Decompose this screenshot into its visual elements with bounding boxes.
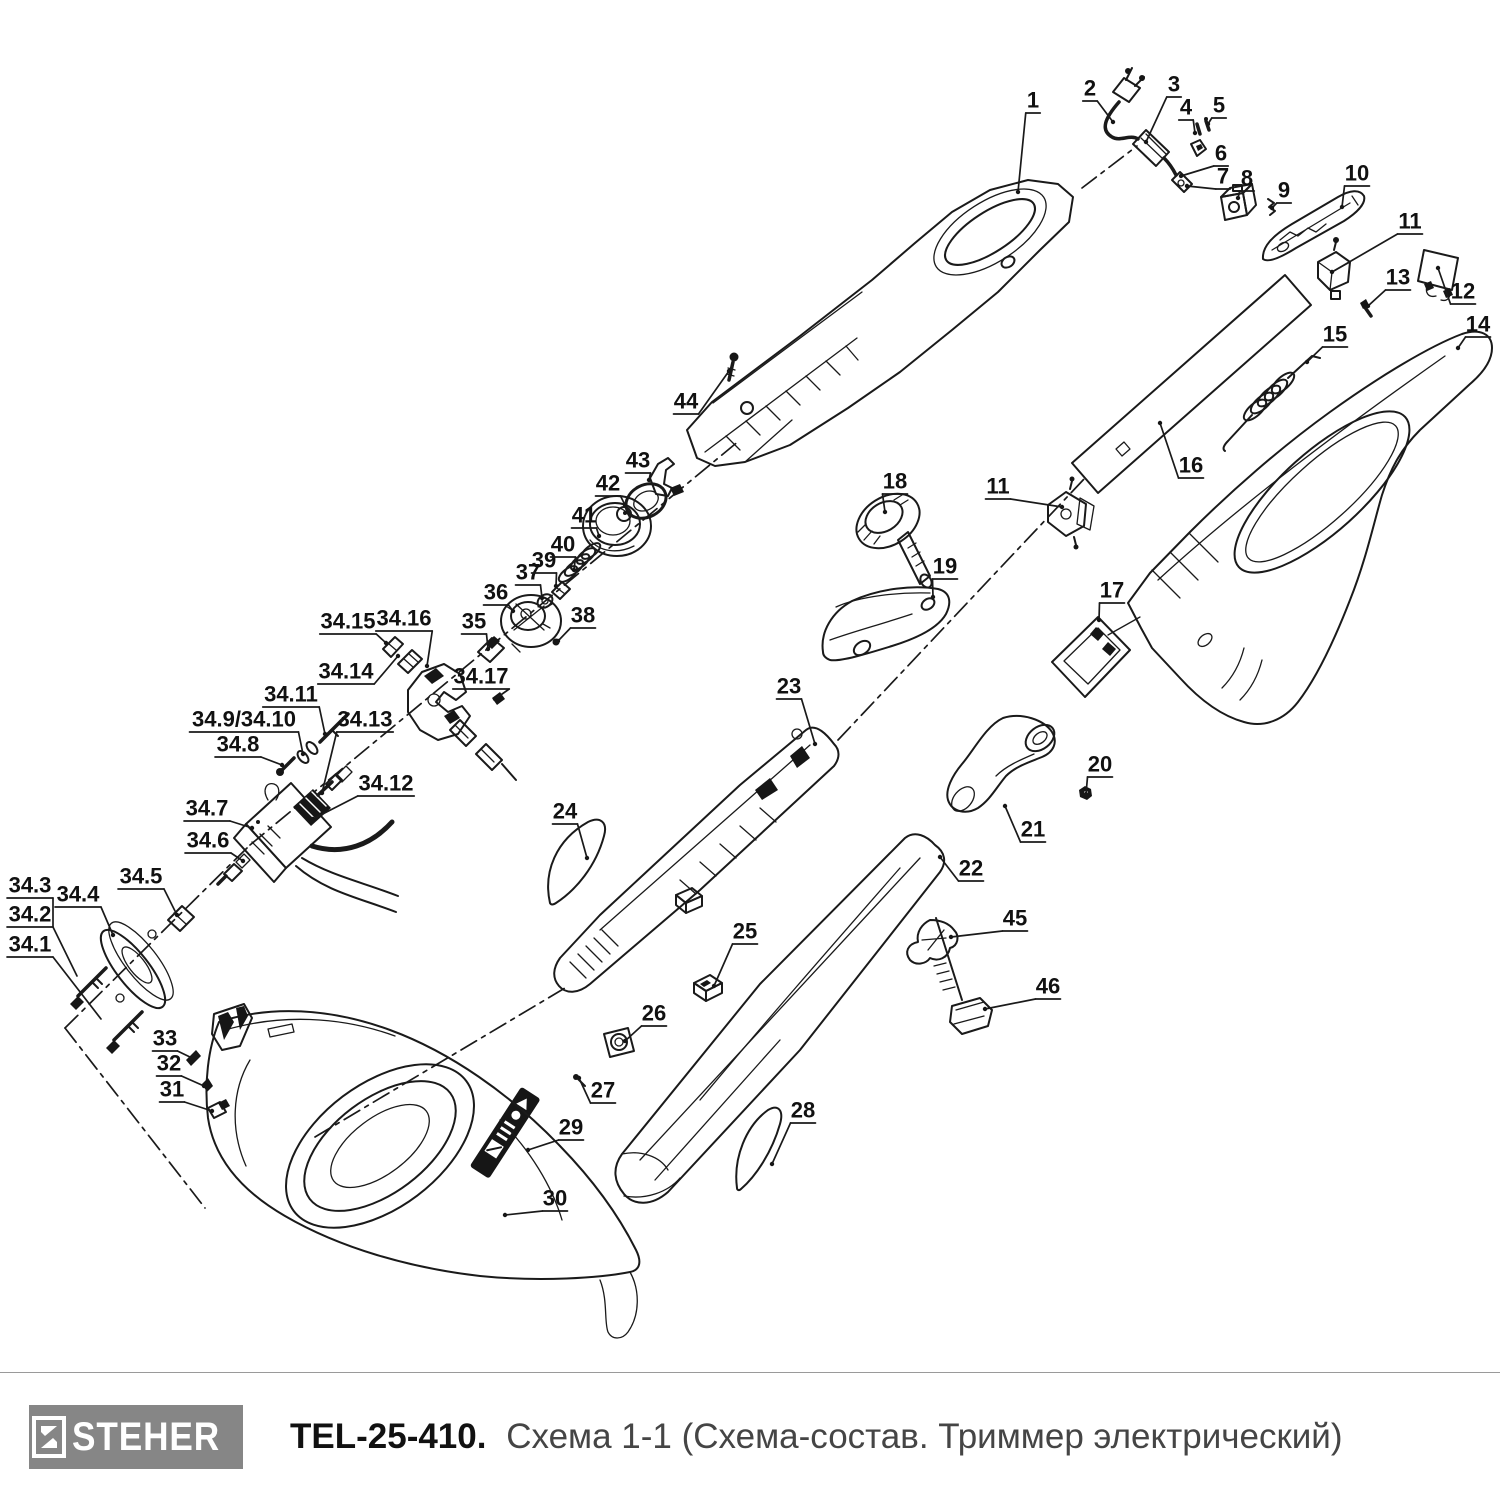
brand-name: STEHER [72, 1415, 220, 1460]
part-label-18: 18 [883, 469, 907, 494]
part-label-34-7: 34.7 [186, 796, 229, 821]
part-label-28: 28 [791, 1098, 815, 1123]
part-label-34-14: 34.14 [318, 659, 374, 684]
part-34-8-screw [276, 758, 294, 776]
part-label-7: 7 [1217, 164, 1229, 189]
part-label-42: 42 [596, 471, 620, 496]
part-label-32: 32 [157, 1051, 181, 1076]
part-label-34-3: 34.3 [9, 873, 52, 898]
part-18-knob [846, 483, 934, 590]
part-label-26: 26 [642, 1001, 666, 1026]
part-label-13: 13 [1386, 265, 1410, 290]
part-label-29: 29 [559, 1115, 583, 1140]
part-label-38: 38 [571, 603, 595, 628]
part-label-22: 22 [959, 856, 983, 881]
footer-bar: STEHER TEL-25-410. Схема 1-1 (Схема-сост… [0, 1372, 1500, 1500]
part-1-upper-housing [687, 172, 1073, 466]
part-label-19: 19 [933, 554, 957, 579]
part-34-14-screw [398, 650, 422, 673]
part-label-34-6: 34.6 [187, 828, 230, 853]
part-label-45: 45 [1003, 906, 1027, 931]
part-30-guard [206, 1004, 639, 1338]
part-label-46: 46 [1036, 974, 1060, 999]
part-label-34-17: 34.17 [453, 664, 508, 689]
part-23-motor-housing [554, 728, 838, 992]
part-29-sticker [470, 1087, 541, 1179]
part-label-41: 41 [572, 503, 596, 528]
part-label-6: 6 [1215, 141, 1227, 166]
part-label-34-16: 34.16 [376, 606, 431, 631]
part-label-27: 27 [591, 1078, 615, 1103]
part-44-screw [727, 353, 739, 381]
part-label-34-9-34-10: 34.9/34.10 [192, 707, 296, 732]
part-14-rear-housing [1128, 332, 1492, 724]
part-34-6-brush [218, 854, 250, 884]
part-label-24: 24 [553, 799, 578, 824]
parts-diagram-page: 1234567891011121314151617181119202122454… [0, 0, 1500, 1500]
part-label-36: 36 [484, 580, 508, 605]
part-label-16: 16 [1179, 453, 1203, 478]
part-34-15-screw [383, 637, 403, 657]
exploded-diagram: 1234567891011121314151617181119202122454… [0, 0, 1500, 1372]
part-label-14: 14 [1466, 312, 1491, 337]
part-label-35: 35 [462, 609, 486, 634]
part-label-31: 31 [160, 1077, 184, 1102]
part-label-33: 33 [153, 1026, 177, 1051]
part-label-34-2: 34.2 [9, 902, 52, 927]
part-11-hinge-upper [1318, 237, 1350, 299]
part-label-11: 11 [1398, 209, 1421, 234]
part-4-terminal [1191, 124, 1206, 156]
part-label-17: 17 [1100, 578, 1124, 603]
diagram-subtitle: Схема 1-1 (Схема-состав. Триммер электри… [506, 1417, 1342, 1456]
part-34-9-10-washers [295, 740, 319, 765]
part-label-3: 3 [1168, 72, 1180, 97]
part-19-clamp-upper [823, 587, 950, 660]
part-label-34-1: 34.1 [9, 932, 52, 957]
part-label-34-12: 34.12 [358, 771, 413, 796]
part-43-clip [650, 458, 684, 496]
part-label-40: 40 [551, 532, 575, 557]
part-label-34-13: 34.13 [337, 707, 392, 732]
diagram-art: 1234567891011121314151617181119202122454… [0, 0, 1500, 1372]
part-2-power-cord [1105, 68, 1145, 139]
part-label-20: 20 [1088, 752, 1112, 777]
part-label-34-8: 34.8 [217, 732, 260, 757]
part-3-cable-sleeve [1133, 130, 1176, 175]
part-label-34-15: 34.15 [320, 609, 375, 634]
part-28-flap [736, 1108, 781, 1190]
part-label-34-5: 34.5 [120, 864, 163, 889]
part-label-2: 2 [1084, 76, 1096, 101]
part-34-1-bolts [70, 968, 142, 1054]
part-17-latch [1052, 617, 1140, 697]
part-31-clip [208, 1099, 230, 1118]
part-label-34-4: 34.4 [57, 882, 101, 907]
steher-logo: STEHER [29, 1405, 243, 1469]
part-label-11: 11 [986, 474, 1009, 499]
part-label-23: 23 [777, 674, 801, 699]
part-label-8: 8 [1241, 166, 1253, 191]
part-46-knob-bolt [950, 998, 992, 1034]
part-45-wing-nut [907, 918, 962, 1000]
diagram-title: TEL-25-410. Схема 1-1 (Схема-состав. Три… [290, 1417, 1343, 1457]
part-35-bushing [478, 636, 504, 662]
part-label-34-11: 34.11 [264, 682, 318, 707]
part-label-10: 10 [1345, 161, 1369, 186]
model-number: TEL-25-410. [290, 1417, 486, 1456]
part-label-30: 30 [543, 1186, 567, 1211]
part-34-4-flange [91, 913, 183, 1016]
part-26-square-nut [604, 1028, 634, 1057]
part-label-9: 9 [1278, 178, 1290, 203]
part-34-5-bushing [168, 906, 194, 931]
part-11-hinge-lower [1048, 477, 1094, 550]
part-label-15: 15 [1323, 322, 1347, 347]
part-21-clamp-lower [947, 716, 1059, 816]
part-label-4: 4 [1180, 95, 1193, 120]
part-label-5: 5 [1213, 93, 1225, 118]
part-label-21: 21 [1021, 817, 1045, 842]
part-label-1: 1 [1027, 88, 1039, 113]
part-label-25: 25 [733, 919, 757, 944]
part-label-43: 43 [626, 448, 650, 473]
part-24-flap [548, 820, 605, 905]
steher-logo-mark [32, 1416, 66, 1458]
part-label-12: 12 [1451, 279, 1475, 304]
part-label-44: 44 [674, 389, 699, 414]
